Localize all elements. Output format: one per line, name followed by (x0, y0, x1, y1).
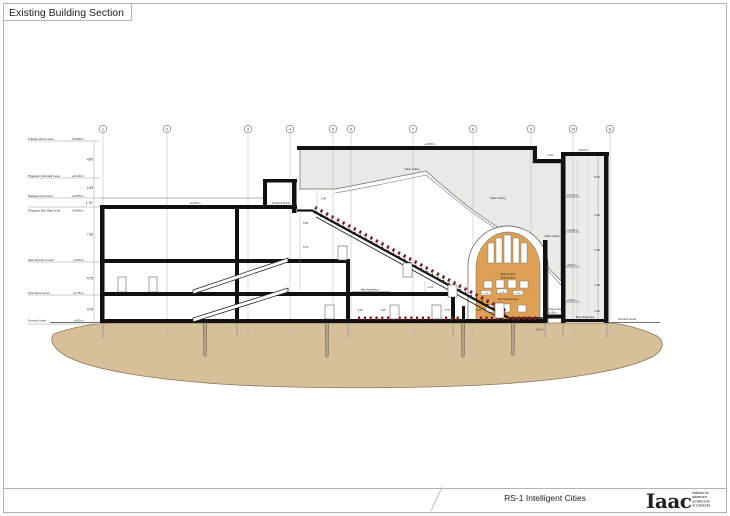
door (149, 277, 157, 292)
tower-wall (604, 152, 609, 323)
main-auditorium-label: Main Auditorium (361, 288, 380, 292)
dim: 4.40 (594, 309, 600, 313)
organ-pipe (496, 238, 502, 263)
tower-top-elev: +22.15 m (578, 148, 589, 152)
grid-label: 9 (530, 127, 532, 131)
grid-label: 2 (166, 127, 168, 131)
roof-elev-label: +25.80 m (425, 142, 436, 146)
organ-pipe (521, 243, 527, 263)
grid-bubbles: 1 2 3 4 5 6 7 8 9 10 11 (99, 125, 614, 133)
door (495, 303, 504, 318)
roof-step-wall (533, 146, 537, 163)
level-annotations: Theatre Roof Level +25.80 m Projector Un… (28, 137, 100, 324)
tower-floor (565, 319, 605, 322)
door (338, 246, 347, 260)
logo-tagline: of Catalonia (692, 504, 710, 508)
box-seat (508, 280, 516, 288)
level-elev: +0.00 m (73, 319, 84, 323)
box-seat (518, 305, 526, 312)
project-title: RS-1 Intelligent Cities (504, 493, 586, 503)
grid-label: 10 (571, 127, 575, 131)
level-name: First Floor Level (28, 291, 50, 295)
ramps (193, 258, 288, 322)
tower-tick-elev: +17.15 m (567, 193, 578, 197)
title-bar: RS-1 Intelligent Cities Iaac Institute f… (4, 487, 727, 513)
dim: 7.30 (87, 233, 93, 237)
ground-level-right-label: Ground Level (618, 317, 636, 321)
false-ceiling-label: False Ceiling (491, 196, 507, 200)
box-seat (520, 281, 528, 288)
grid-label: 6 (350, 127, 352, 131)
door (118, 277, 126, 292)
grid-label: 3 (247, 127, 249, 131)
drawing-sheet: Existing Building Section (0, 0, 730, 516)
dim: 4.80 (87, 158, 93, 162)
roof-slab (297, 146, 537, 150)
elev-tag-label: +1.20 (515, 293, 521, 295)
elev-tag-label: +2.40 (499, 292, 505, 294)
level-name: Theatre Roof Level (28, 137, 54, 141)
grid-label: 4 (289, 127, 291, 131)
level-name: Ground Level (28, 319, 46, 323)
ground-fill (52, 323, 662, 388)
dim: 2.20 (548, 153, 554, 157)
ramp-upper (193, 258, 288, 294)
ground-slab (100, 319, 547, 323)
level-elev: +4.75 m (73, 291, 84, 295)
ground-mass (50, 323, 662, 388)
grid-label: 11 (608, 127, 612, 131)
dim: 3.50 (303, 221, 309, 225)
roof-slab-low (537, 159, 565, 163)
box-seat (484, 281, 492, 288)
level-name: Second Floor Level (28, 258, 54, 262)
tower-tick-elev: +12.90 m (567, 228, 578, 232)
iaac-logo: Iaac (646, 489, 692, 513)
sheet-frame: Existing Building Section (4, 4, 727, 513)
section-drawing: Existing Building Section (0, 0, 730, 516)
dim: 4.25 (594, 213, 600, 217)
pit-wall (462, 306, 465, 322)
dim: 4.25 (594, 283, 600, 287)
projector-room-label: Projector Room (272, 201, 290, 205)
pile (461, 323, 465, 357)
level-elev: +16.80 m (71, 209, 84, 213)
dim: 1.34 (428, 285, 434, 289)
level-elev: +21.00 m (71, 174, 84, 178)
organ-pipe (504, 235, 511, 263)
tower-tick-elev: +4.40 m (567, 298, 576, 302)
dim: 2.45 (87, 186, 93, 190)
balcony-box-label: Balcony Box (501, 272, 516, 276)
false-ceiling-label: False Ceiling (405, 167, 421, 171)
dim: 2.40 (321, 197, 327, 201)
back-stage-label: Back Stage Area (576, 316, 595, 319)
dim: 3.79 (303, 245, 309, 249)
projector-room-roof (263, 179, 297, 183)
level-name: Projector Box Half Level (28, 209, 61, 213)
pile (203, 323, 207, 356)
pile (511, 323, 515, 355)
pile (325, 323, 329, 357)
dim: 4.75 (87, 277, 93, 281)
tower-roof-slab (561, 152, 609, 156)
level-elev: +25.80 m (71, 137, 84, 141)
door (390, 305, 399, 319)
slab-elev-label: +16.80 m (190, 201, 201, 205)
dim: 5.00 (594, 175, 600, 179)
page-title: Existing Building Section (9, 7, 124, 19)
elev-tag-label: +1.20 (483, 293, 489, 295)
grid-label: 5 (332, 127, 334, 131)
level-name: Projector Unit Half Level (28, 174, 61, 178)
grid-label: 7 (412, 127, 414, 131)
stage-slab (545, 315, 563, 319)
organ-pipe (513, 238, 519, 263)
level-elev: +18.55 m (71, 194, 84, 198)
dim: 4.35 (380, 308, 386, 312)
grid-label: 8 (472, 127, 474, 131)
level-elev: +9.50 m (73, 258, 84, 262)
box-seating-label: Box Seating Area (498, 297, 519, 301)
door (448, 285, 457, 297)
door (432, 305, 441, 319)
second-floor-slab (104, 259, 350, 263)
door (403, 263, 412, 277)
projector-room-wall (292, 179, 297, 213)
dim: 4.75 (87, 308, 93, 312)
interior-wall (346, 262, 350, 321)
door (325, 305, 334, 319)
level-name: Parapet Unit Level (28, 194, 53, 198)
projector-room-wall (263, 179, 267, 209)
tower-wall (561, 152, 566, 323)
projector-level-slab (100, 205, 297, 209)
dim: 4.75 (444, 308, 450, 312)
left-wall (100, 205, 105, 323)
dim: 4.45 (357, 308, 363, 312)
title-bar-slash (431, 487, 442, 511)
dim: 4.45 (476, 308, 482, 312)
balcony-box-label: Seating Area (501, 275, 516, 279)
organ-pipe (488, 243, 494, 263)
pit-elev-label: -0.75 m (535, 329, 543, 332)
performance-stage-elev: +0.60 m (549, 311, 558, 314)
box-seat (496, 280, 504, 288)
grid-label: 1 (102, 127, 104, 131)
tower-tick-elev: +8.65 m (567, 263, 576, 267)
false-ceiling-label: False Ceiling (545, 234, 561, 238)
dim: 1.75 (86, 201, 92, 205)
outer-border (4, 4, 727, 513)
dim: 4.25 (594, 248, 600, 252)
